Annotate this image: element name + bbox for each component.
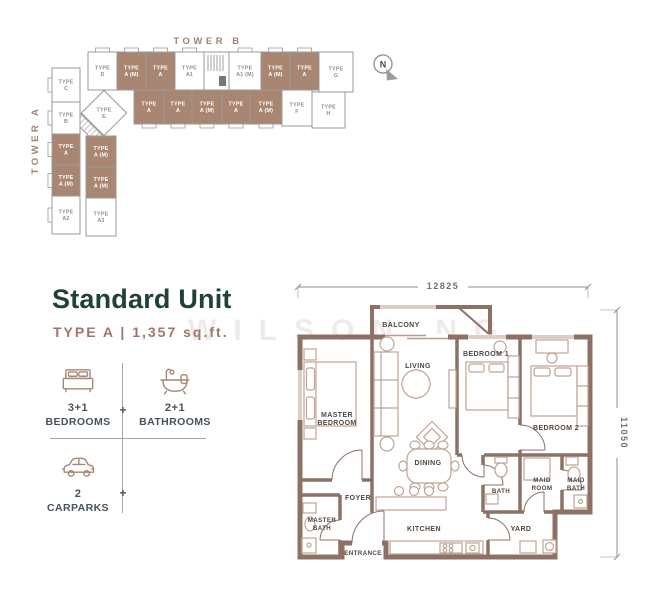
keyplan-unit: TYPEA (M) (48, 165, 80, 196)
keyplan-unit: TYPEA3 (86, 198, 116, 236)
compass-n-label: N (380, 60, 387, 70)
room-label: BEDROOM 2 (533, 425, 579, 432)
key-plan: TOWER B TOWER A TYPEDTYPEA (M)TYPEATYPEA… (30, 36, 398, 236)
bed-icon (59, 366, 97, 396)
keyplan-unit-label: TYPEA (M) (124, 66, 139, 78)
bathrooms-count: 2+1 (136, 402, 214, 414)
keyplan-unit: TYPEG (319, 52, 353, 92)
keyplan-unit-label: TYPEA1 (M) (236, 66, 254, 78)
tower-a-label: TOWER A (30, 106, 41, 175)
keyplan-unit-label: TYPEA (M) (59, 175, 74, 187)
room-label: MASTERBATH (308, 517, 337, 532)
compass-arrow (386, 69, 398, 81)
keyplan-unit: TYPEA (146, 48, 175, 90)
bedrooms-count: 3+1 (39, 402, 117, 414)
room-label: MASTERBEDROOM (317, 412, 356, 427)
room-label: KITCHEN (407, 526, 441, 533)
bedrooms-label: BEDROOMS (39, 416, 117, 428)
keyplan-unit: TYPEA (164, 90, 192, 128)
keyplan-unit: TYPEA (48, 134, 80, 165)
room-label: DINING (415, 460, 442, 467)
keyplan-unit-label: TYPEA (M) (94, 177, 109, 189)
room-label: YARD (511, 526, 532, 533)
keyplan-unit: TYPEA1 (M) (229, 48, 261, 90)
brochure-page: WILSON NG TOWER B TOWER A TYPEDTYPEA (M)… (0, 0, 664, 600)
keyplan-unit-label: TYPEA (M) (94, 146, 109, 158)
carparks-count: 2 (39, 488, 117, 500)
room-label: FOYER (345, 495, 371, 502)
room-label: BEDROOM 1 (463, 351, 509, 358)
page-title: Standard Unit (52, 284, 232, 315)
room-label: ENTRANCE (344, 550, 382, 557)
room-label: MAIDROOM (532, 477, 553, 492)
keyplan-unit: TYPEA (M) (117, 48, 146, 90)
dim-width: 12825 (427, 281, 460, 291)
compass-icon: N (374, 55, 398, 81)
keyplan-unit: TYPEB (48, 102, 80, 134)
keyplan-unit: TYPED (88, 48, 117, 90)
carparks-label: CARPARKS (39, 502, 117, 514)
keyplan-unit: TYPEH (312, 92, 345, 128)
floor-plan: 12825 11050 (295, 278, 629, 560)
room-label: LIVING (405, 363, 431, 370)
dim-height: 11050 (619, 417, 629, 449)
keyplan-unit: TYPEA (134, 90, 164, 128)
room-label: BALCONY (382, 322, 419, 329)
divider-plus-mark: + (117, 486, 129, 500)
keyplan-unit: TYPEA (222, 90, 250, 128)
keyplan-unit: TYPEA (M) (250, 90, 282, 128)
tower-b-label: TOWER B (173, 36, 242, 47)
room-label: MAIDBATH (567, 477, 585, 492)
divider-plus-mark: + (117, 403, 129, 417)
keyplan-unit: TYPEA2 (48, 196, 80, 234)
keyplan-unit: TYPEA1 (175, 48, 204, 90)
room-label: BATH (492, 488, 510, 495)
keyplan-unit: TYPEA (M) (192, 90, 222, 128)
keyplan-unit: TYPEA (M) (86, 167, 116, 198)
keyplan-unit: TYPEA (290, 48, 319, 90)
keyplan-unit-label: TYPEA (M) (268, 66, 283, 78)
keyplan-unit-label: TYPEA (M) (259, 102, 274, 114)
spec-divider-horizontal (50, 438, 206, 439)
spec-bedrooms: 3+1 BEDROOMS (39, 366, 117, 428)
bath-icon (156, 364, 194, 396)
bathrooms-label: BATHROOMS (136, 416, 214, 428)
keyplan-unit (204, 52, 229, 90)
keyplan-unit: TYPEC (48, 68, 80, 102)
spec-bathrooms: 2+1 BATHROOMS (136, 364, 214, 428)
unit-type-subtitle: TYPE A | 1,357 sq.ft. (53, 324, 229, 340)
car-icon (59, 452, 97, 482)
keyplan-unit: TYPEA (M) (261, 48, 290, 90)
keyplan-unit-label: TYPEA (M) (200, 102, 215, 114)
keyplan-unit: TYPEF (282, 90, 312, 126)
keyplan-unit: TYPEA (M) (86, 136, 116, 167)
spec-carparks: 2 CARPARKS (39, 452, 117, 514)
